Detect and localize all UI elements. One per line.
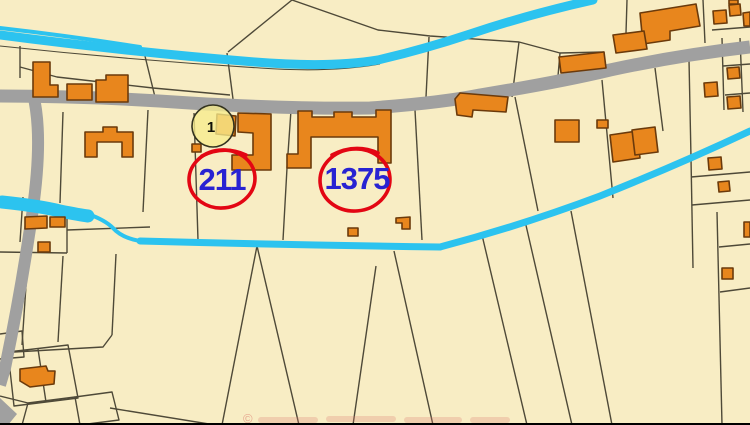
- building: [632, 127, 658, 155]
- building: [25, 216, 47, 229]
- map-viewport: 1 211 1375 ©: [0, 0, 750, 425]
- parcel-211-number: 211: [198, 162, 246, 197]
- parcel-1375-number: 1375: [325, 161, 391, 196]
- building: [597, 120, 608, 128]
- building: [729, 4, 741, 16]
- building: [613, 31, 647, 53]
- building: [713, 10, 727, 24]
- building: [743, 12, 750, 26]
- building: [38, 242, 50, 252]
- building: [50, 217, 65, 227]
- building: [727, 67, 740, 79]
- map-marker[interactable]: 1: [192, 105, 234, 147]
- building: [348, 228, 358, 236]
- building: [708, 157, 722, 170]
- building: [722, 268, 733, 279]
- building: [704, 82, 718, 97]
- map-canvas: 1 211 1375 ©: [0, 0, 750, 425]
- building: [555, 120, 579, 142]
- building: [192, 144, 201, 152]
- building: [67, 84, 92, 100]
- building: [718, 181, 730, 192]
- copyright-symbol: ©: [243, 411, 253, 425]
- building: [729, 0, 738, 4]
- building: [727, 96, 741, 109]
- marker-label: 1: [207, 119, 215, 136]
- building: [744, 222, 750, 237]
